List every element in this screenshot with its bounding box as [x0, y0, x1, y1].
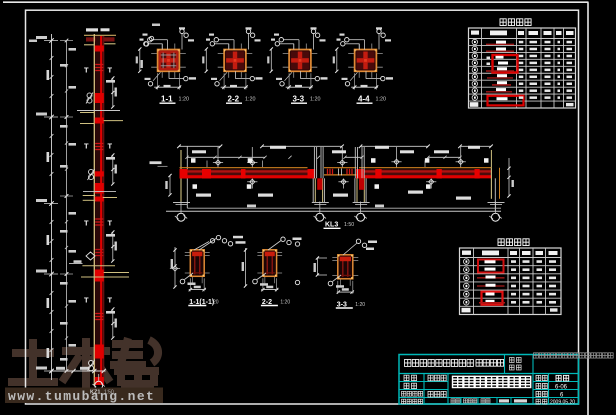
- svg-text:T: T: [108, 66, 113, 75]
- svg-text:T: T: [84, 296, 89, 305]
- svg-text:T: T: [108, 219, 113, 228]
- svg-text:1-1: 1-1: [161, 95, 173, 104]
- svg-text:1:20: 1:20: [245, 97, 256, 103]
- svg-text:1:50: 1:50: [104, 390, 114, 396]
- svg-text:2-2: 2-2: [262, 299, 272, 306]
- svg-text:www.tumubang.net: www.tumubang.net: [8, 389, 155, 404]
- svg-text:2-2: 2-2: [228, 95, 240, 104]
- svg-text:1:20: 1:20: [179, 97, 190, 103]
- svg-text:1:20: 1:20: [376, 97, 387, 103]
- svg-text:1:20: 1:20: [310, 97, 321, 103]
- svg-text:KL3: KL3: [325, 222, 338, 229]
- svg-text:4-4: 4-4: [358, 95, 370, 104]
- svg-text:T: T: [84, 219, 89, 228]
- svg-text:T: T: [84, 66, 89, 75]
- svg-text:3-3: 3-3: [337, 301, 347, 308]
- svg-text:6-06: 6-06: [555, 385, 568, 391]
- svg-text:T: T: [108, 296, 113, 305]
- svg-text:1:50: 1:50: [344, 222, 354, 228]
- svg-text:T: T: [108, 142, 113, 151]
- svg-text:1:20: 1:20: [355, 302, 365, 308]
- svg-text:1:20: 1:20: [280, 299, 290, 305]
- svg-text:3-3: 3-3: [293, 95, 305, 104]
- svg-text:2009.05.20: 2009.05.20: [550, 399, 575, 405]
- svg-text:T: T: [84, 142, 89, 151]
- svg-text:1:20: 1:20: [209, 299, 219, 305]
- svg-text:KZ1: KZ1: [90, 390, 100, 396]
